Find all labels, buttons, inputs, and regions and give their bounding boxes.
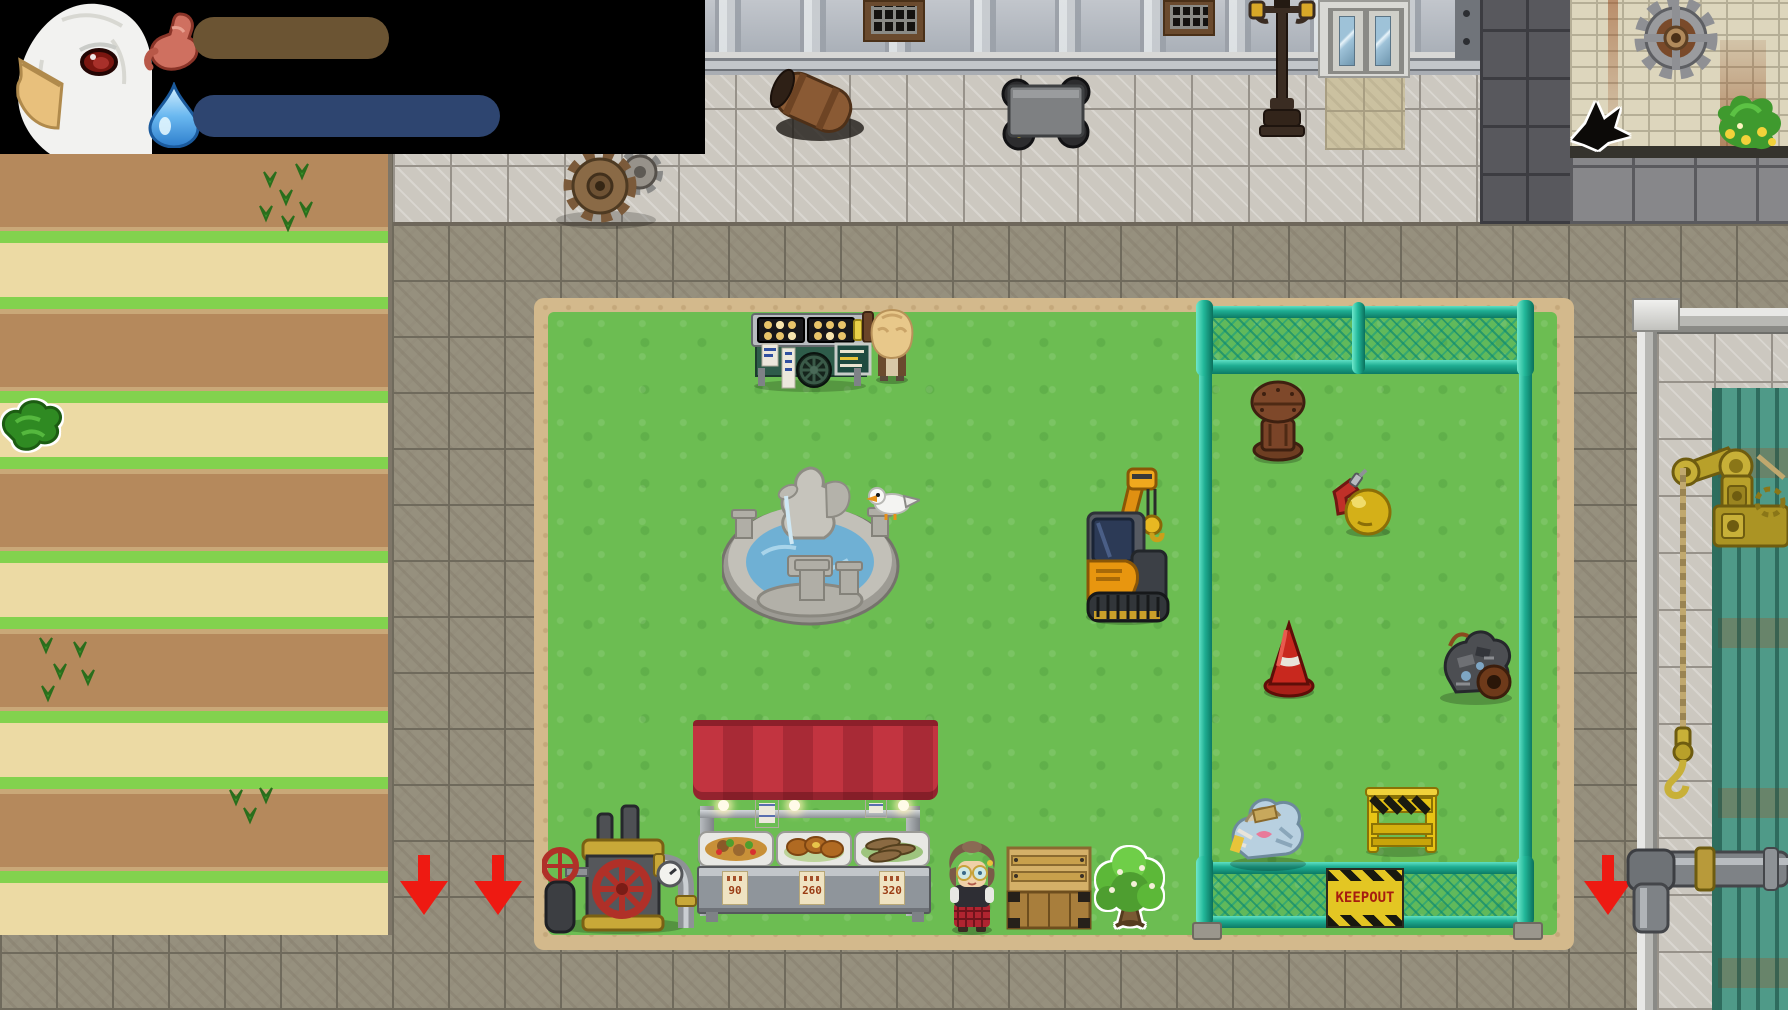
- rivet: [1463, 10, 1470, 17]
- barred-window: [1163, 0, 1215, 36]
- stone-corner: [1480, 0, 1570, 224]
- post-base: [1513, 922, 1543, 940]
- stall-lamp: [789, 800, 800, 811]
- girl-npc[interactable]: [944, 841, 1000, 935]
- flower-vines: [1702, 86, 1788, 154]
- trash-bags: [1226, 778, 1310, 872]
- steam-pump: [542, 800, 702, 936]
- hunger-bar-track: [193, 17, 500, 59]
- barricade: [1362, 786, 1442, 858]
- stall-lamp: [718, 800, 729, 811]
- fence-rail: [1197, 306, 1533, 318]
- highlighted-bush[interactable]: [0, 392, 64, 456]
- takoyaki-cart[interactable]: [750, 306, 876, 392]
- window-bars: [1170, 5, 1208, 29]
- fallen-barrel: [768, 66, 878, 156]
- post-base: [1192, 922, 1222, 940]
- window-bars: [871, 6, 917, 34]
- sprouts: [250, 156, 326, 232]
- counter-leg: [912, 912, 924, 922]
- traffic-cone: [1262, 620, 1316, 700]
- stall-crossbar: [700, 810, 920, 818]
- fence-post: [1196, 856, 1213, 926]
- metal-plate: [1455, 0, 1480, 60]
- price-tag: 260: [799, 871, 825, 905]
- sprouts: [222, 782, 284, 832]
- fence-mesh-top: [1204, 318, 1526, 362]
- farm-field: [0, 154, 392, 935]
- exit-arrow-down[interactable]: [398, 855, 450, 917]
- elevator[interactable]: [1318, 0, 1410, 78]
- game-viewport: 90 260 320: [0, 0, 1788, 1010]
- stall-lamp: [898, 800, 909, 811]
- wall-hole[interactable]: [1568, 90, 1634, 152]
- thirst-bar-fill: [193, 95, 500, 137]
- fence-rail-right: [1519, 306, 1532, 928]
- rusty-hydrant: [1250, 380, 1306, 464]
- wall-gear-icon: [1630, 0, 1722, 82]
- fountain: [722, 450, 922, 630]
- fence-post: [1352, 302, 1365, 374]
- player-portrait: [2, 0, 152, 154]
- lamppost: [1248, 0, 1316, 140]
- scrap-pile: [1436, 618, 1516, 706]
- thirst-bar-track: [193, 95, 500, 137]
- hunger-bar-fill: [193, 17, 389, 59]
- exit-arrow-down[interactable]: [472, 855, 524, 917]
- stone-ledge: [1570, 158, 1788, 224]
- elevator-door-left[interactable]: [1332, 10, 1364, 72]
- stomach-icon: [142, 10, 200, 72]
- counter-leg: [706, 912, 718, 922]
- price-tag: 320: [879, 871, 905, 905]
- crane-hook: [1660, 726, 1706, 800]
- floor-pipes: [1624, 844, 1788, 940]
- door-glass: [1375, 16, 1391, 66]
- vendor-npc[interactable]: [870, 308, 914, 384]
- keepout-text: KEEPOUT: [1335, 890, 1394, 906]
- sprouts: [30, 628, 110, 712]
- fence-post: [1517, 300, 1534, 376]
- wooden-crate[interactable]: [1006, 846, 1092, 930]
- fence-post: [1517, 856, 1534, 926]
- keepout-sign: KEEPOUT: [1326, 868, 1404, 928]
- stall-awning: [693, 720, 938, 800]
- mine-cart: [995, 68, 1095, 156]
- fence-rail: [1197, 360, 1533, 374]
- crane-rope: [1680, 468, 1686, 730]
- yellow-ball: [1342, 488, 1394, 538]
- stall-hanging-sign: [755, 798, 779, 828]
- barred-window: [863, 0, 925, 42]
- stall-hanging-sign: [865, 798, 887, 818]
- elevator-door-right[interactable]: [1368, 10, 1400, 72]
- highlighted-tree[interactable]: [1090, 844, 1170, 934]
- workshop-beam-cap: [1632, 298, 1680, 332]
- stall-trays: [697, 828, 931, 870]
- fence-post: [1196, 300, 1213, 376]
- door-glass: [1339, 16, 1355, 66]
- crane-excavator: [1086, 465, 1170, 627]
- seagull: [866, 484, 920, 522]
- price-tag: 90: [722, 871, 748, 905]
- rivet: [1463, 38, 1470, 45]
- fence-rail-left: [1199, 306, 1212, 928]
- hud-panel: [0, 0, 705, 154]
